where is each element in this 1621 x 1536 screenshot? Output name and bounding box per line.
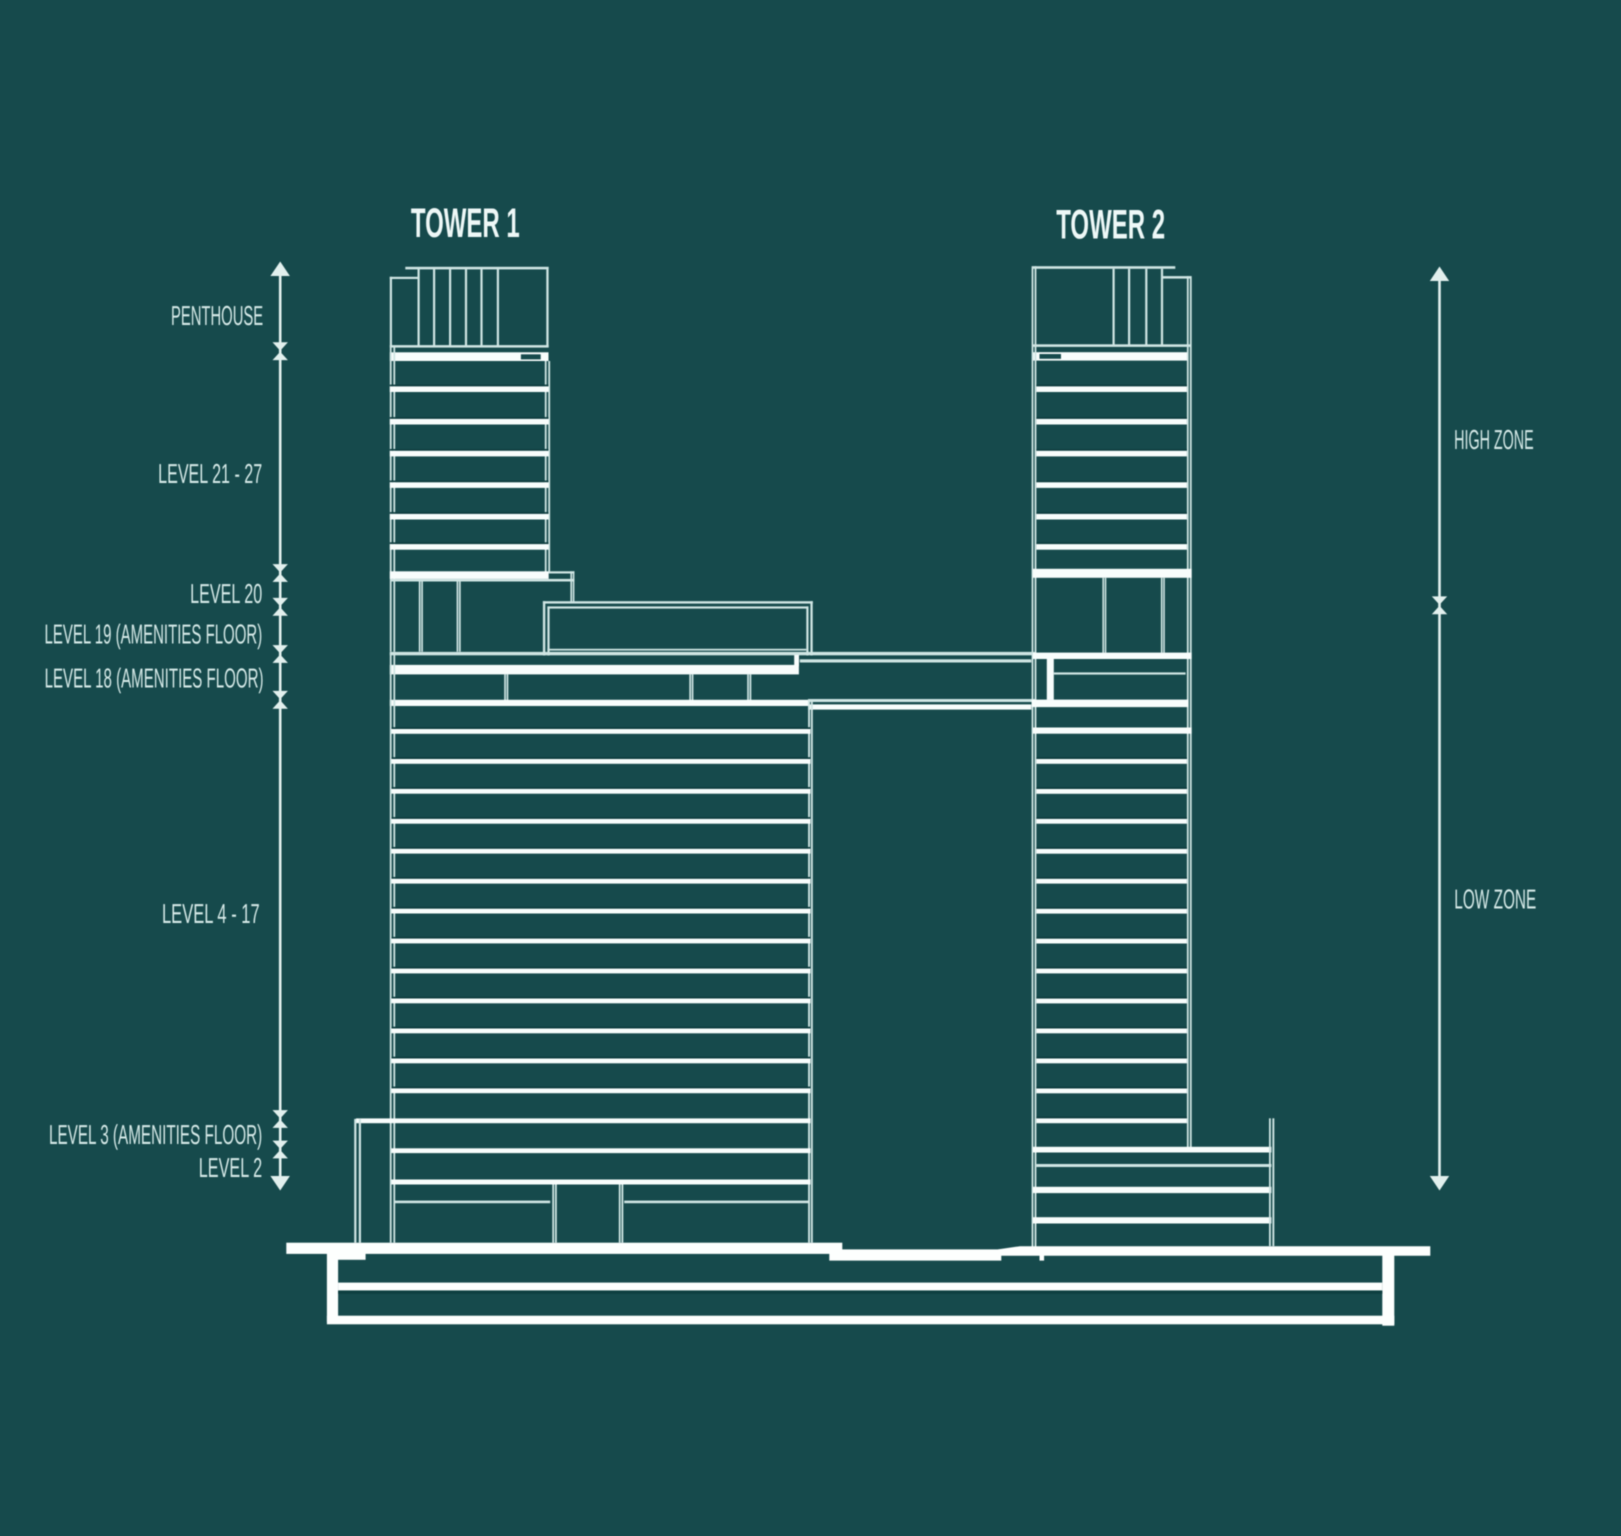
svg-text:TOWER 2: TOWER 2 (1056, 201, 1165, 248)
svg-text:LEVEL 4 - 17: LEVEL 4 - 17 (162, 898, 260, 929)
svg-text:LEVEL 18 (AMENITIES FLOOR): LEVEL 18 (AMENITIES FLOOR) (45, 662, 264, 693)
svg-text:HIGH ZONE: HIGH ZONE (1454, 424, 1534, 455)
svg-text:LEVEL 21 - 27: LEVEL 21 - 27 (158, 458, 262, 489)
svg-text:TOWER 1: TOWER 1 (411, 199, 520, 246)
svg-text:LEVEL 3 (AMENITIES FLOOR): LEVEL 3 (AMENITIES FLOOR) (49, 1119, 262, 1150)
svg-text:LOW ZONE: LOW ZONE (1454, 883, 1536, 914)
svg-text:LEVEL 19 (AMENITIES FLOOR): LEVEL 19 (AMENITIES FLOOR) (45, 618, 263, 649)
svg-text:LEVEL 20: LEVEL 20 (190, 578, 262, 609)
svg-text:PENTHOUSE: PENTHOUSE (171, 300, 263, 331)
svg-text:LEVEL 2: LEVEL 2 (199, 1152, 262, 1183)
